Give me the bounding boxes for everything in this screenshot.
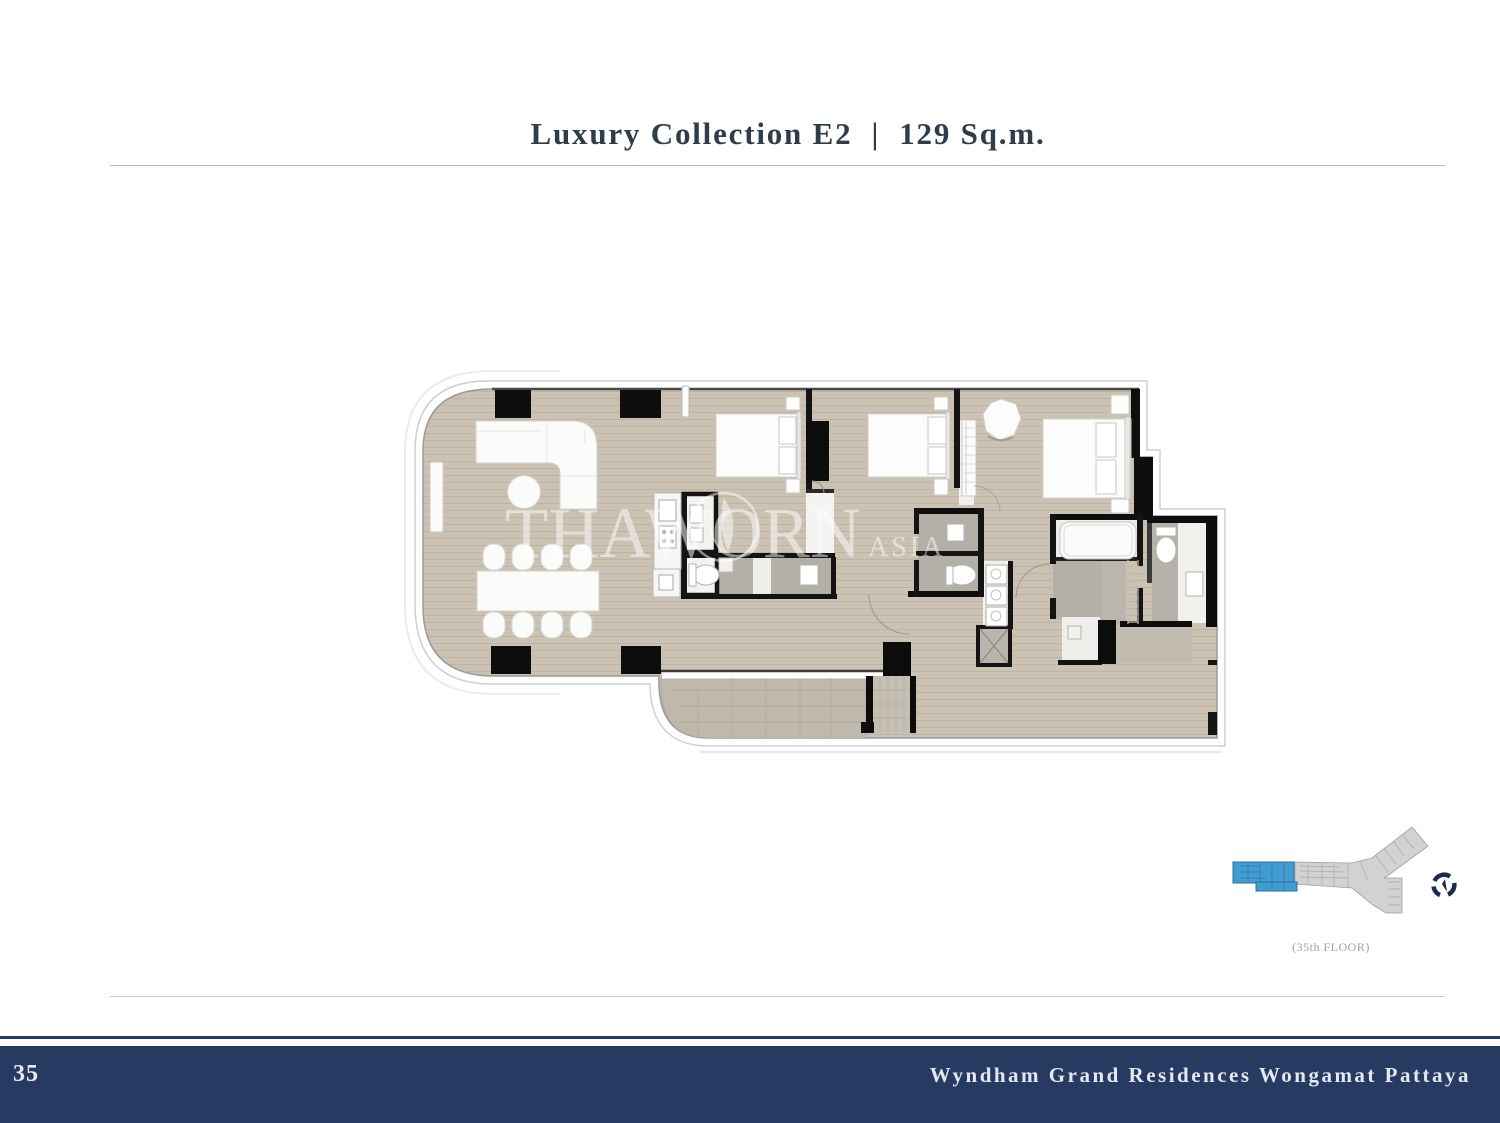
- svg-text:ASIA: ASIA: [868, 532, 945, 563]
- svg-text:THAWORN: THAWORN: [505, 493, 861, 573]
